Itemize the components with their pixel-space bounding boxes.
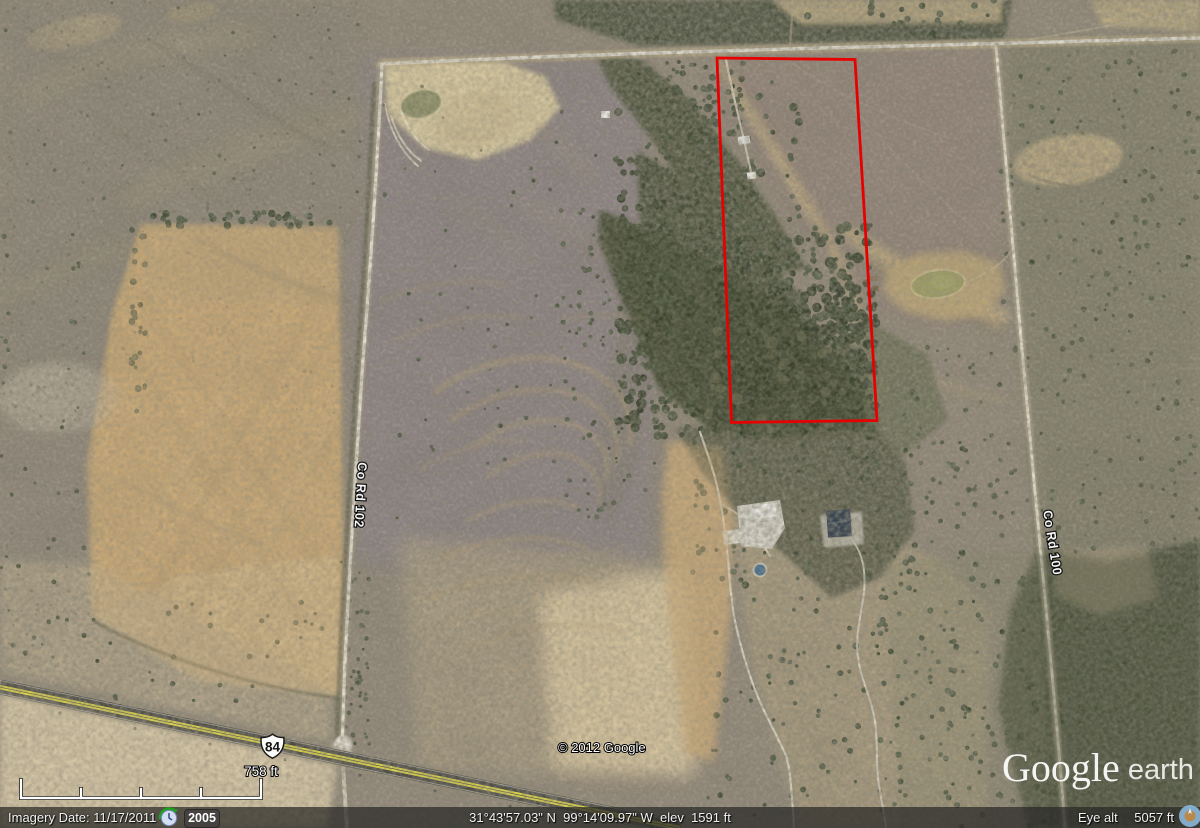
- svg-text:© 2012 Google: © 2012 Google: [558, 740, 646, 755]
- svg-text:84: 84: [265, 740, 281, 755]
- svg-text:758 ft: 758 ft: [244, 764, 278, 779]
